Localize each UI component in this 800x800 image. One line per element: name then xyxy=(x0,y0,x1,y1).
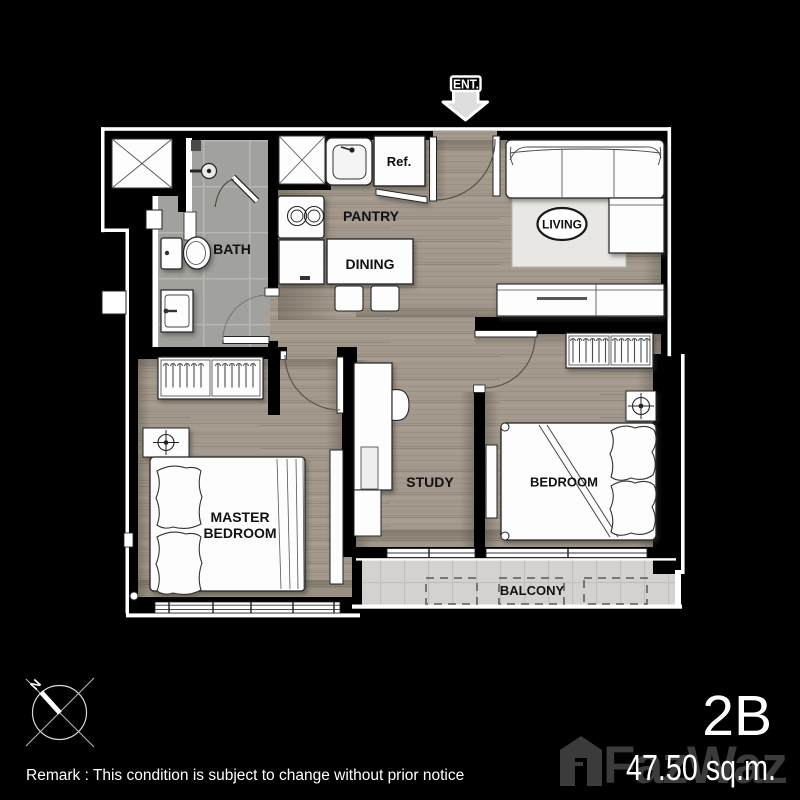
svg-text:Ref.: Ref. xyxy=(387,154,412,169)
svg-text:DINING: DINING xyxy=(346,256,395,272)
svg-text:BEDROOM: BEDROOM xyxy=(203,525,276,541)
svg-text:PANTRY: PANTRY xyxy=(343,208,400,224)
svg-text:BALCONY: BALCONY xyxy=(500,583,565,598)
svg-text:BEDROOM: BEDROOM xyxy=(530,475,598,490)
svg-text:STUDY: STUDY xyxy=(406,474,454,490)
svg-text:ENT.: ENT. xyxy=(453,77,479,92)
svg-text:MASTER: MASTER xyxy=(210,509,269,525)
svg-text:Remark : This condition is sub: Remark : This condition is subject to ch… xyxy=(26,767,464,784)
svg-text:47.50 sq.m.: 47.50 sq.m. xyxy=(626,747,776,788)
svg-text:LIVING: LIVING xyxy=(542,218,582,232)
svg-text:2B: 2B xyxy=(702,684,772,748)
svg-text:BATH: BATH xyxy=(213,241,251,257)
